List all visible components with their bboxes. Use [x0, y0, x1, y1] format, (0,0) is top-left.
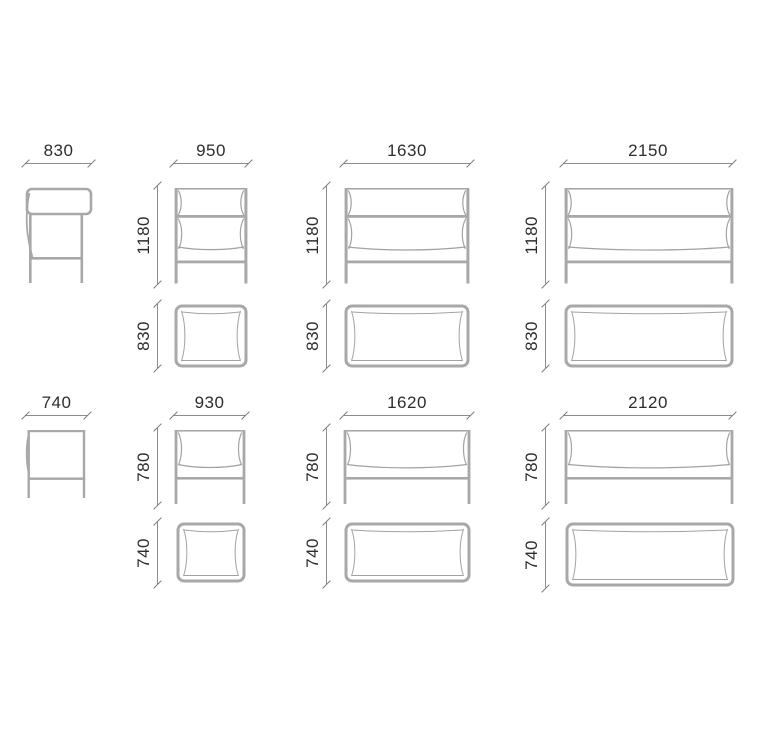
sofa-front-high-drawing [564, 186, 734, 284]
width-dim-armchair-high: 950 [173, 141, 249, 164]
dim-line [545, 522, 546, 588]
dim-label: 2150 [563, 141, 733, 161]
width-dim-armchair-low: 930 [173, 393, 246, 416]
dim-label: 780 [134, 452, 154, 482]
dim-line [157, 304, 158, 368]
dim-label: 950 [173, 141, 249, 161]
dim-line [326, 428, 327, 505]
depth-dim-loveseat-low: 740 [301, 522, 327, 584]
height-dim-loveseat-high: 1180 [301, 186, 327, 284]
dim-tick [541, 517, 549, 525]
dim-tick [541, 299, 549, 307]
loveseat-top-low-drawing [344, 522, 471, 583]
loveseat-front-low-drawing [343, 428, 471, 505]
dim-tick [153, 364, 161, 372]
loveseat-top-high-drawing [344, 304, 470, 368]
dim-tick [153, 501, 161, 509]
dim-line [326, 186, 327, 284]
sofa-top-low-drawing [565, 522, 735, 587]
dim-line [545, 304, 546, 368]
dim-label: 780 [522, 452, 542, 482]
height-dim-sofa-low: 780 [520, 428, 546, 505]
dim-label: 2120 [563, 393, 733, 413]
dim-label: 1630 [343, 141, 471, 161]
width-dim-sofa-low: 2120 [563, 393, 733, 416]
dim-tick [541, 501, 549, 509]
dim-label: 930 [173, 393, 246, 413]
dim-tick [322, 280, 330, 288]
dim-label: 1180 [303, 216, 323, 255]
dim-line [563, 415, 733, 416]
dim-tick [322, 501, 330, 509]
dim-line [545, 186, 546, 284]
dim-line [326, 304, 327, 368]
depth-dim-loveseat-high: 830 [301, 304, 327, 368]
side-view-low-drawing [25, 428, 90, 500]
dim-line [343, 163, 471, 164]
armchair-top-high-drawing [174, 304, 248, 368]
armchair-front-low-drawing [174, 428, 246, 505]
side-view-high-drawing [25, 187, 93, 285]
dim-tick [153, 181, 161, 189]
dim-tick [322, 580, 330, 588]
width-dim-loveseat-high: 1630 [343, 141, 471, 164]
dim-label: 740 [522, 540, 542, 570]
width-dim-side-high: 830 [25, 141, 92, 164]
dim-label: 780 [303, 452, 323, 482]
dim-label: 830 [134, 321, 154, 351]
dim-tick [541, 280, 549, 288]
dim-line [173, 415, 246, 416]
dim-tick [322, 299, 330, 307]
height-dim-armchair-low: 780 [132, 428, 158, 505]
width-dim-side-low: 740 [25, 393, 88, 416]
dim-line [545, 428, 546, 505]
depth-dim-armchair-low: 740 [132, 522, 158, 584]
dim-label: 1180 [134, 216, 154, 255]
dim-line [326, 522, 327, 584]
dim-line [173, 163, 249, 164]
furniture-dimension-sheet: 830 950 1630 2150 1180 1180 1180 [0, 0, 767, 741]
dim-label: 830 [522, 321, 542, 351]
dim-tick [541, 423, 549, 431]
dim-label: 830 [25, 141, 92, 161]
dim-line [25, 415, 88, 416]
dim-label: 740 [134, 538, 154, 568]
loveseat-front-high-drawing [344, 186, 470, 284]
height-dim-sofa-high: 1180 [520, 186, 546, 284]
dim-tick [153, 517, 161, 525]
dim-tick [541, 364, 549, 372]
depth-dim-sofa-low: 740 [520, 522, 546, 588]
dim-label: 740 [25, 393, 88, 413]
dim-tick [322, 181, 330, 189]
armchair-front-high-drawing [174, 186, 248, 284]
sofa-top-high-drawing [564, 304, 734, 368]
dim-line [157, 428, 158, 505]
dim-tick [322, 517, 330, 525]
dim-tick [541, 181, 549, 189]
dim-tick [322, 423, 330, 431]
dim-line [25, 163, 92, 164]
width-dim-sofa-high: 2150 [563, 141, 733, 164]
dim-line [157, 522, 158, 584]
dim-tick [153, 423, 161, 431]
depth-dim-sofa-high: 830 [520, 304, 546, 368]
dim-line [563, 163, 733, 164]
dim-label: 740 [303, 538, 323, 568]
dim-tick [153, 580, 161, 588]
sofa-front-low-drawing [564, 428, 734, 505]
armchair-top-low-drawing [176, 522, 246, 583]
dim-tick [541, 584, 549, 592]
height-dim-loveseat-low: 780 [301, 428, 327, 505]
dim-tick [322, 364, 330, 372]
dim-tick [153, 299, 161, 307]
dim-label: 1180 [522, 216, 542, 255]
dim-line [157, 186, 158, 284]
height-dim-armchair-high: 1180 [132, 186, 158, 284]
dim-line [343, 415, 471, 416]
dim-tick [153, 280, 161, 288]
width-dim-loveseat-low: 1620 [343, 393, 471, 416]
dim-label: 830 [303, 321, 323, 351]
depth-dim-armchair-high: 830 [132, 304, 158, 368]
dim-label: 1620 [343, 393, 471, 413]
